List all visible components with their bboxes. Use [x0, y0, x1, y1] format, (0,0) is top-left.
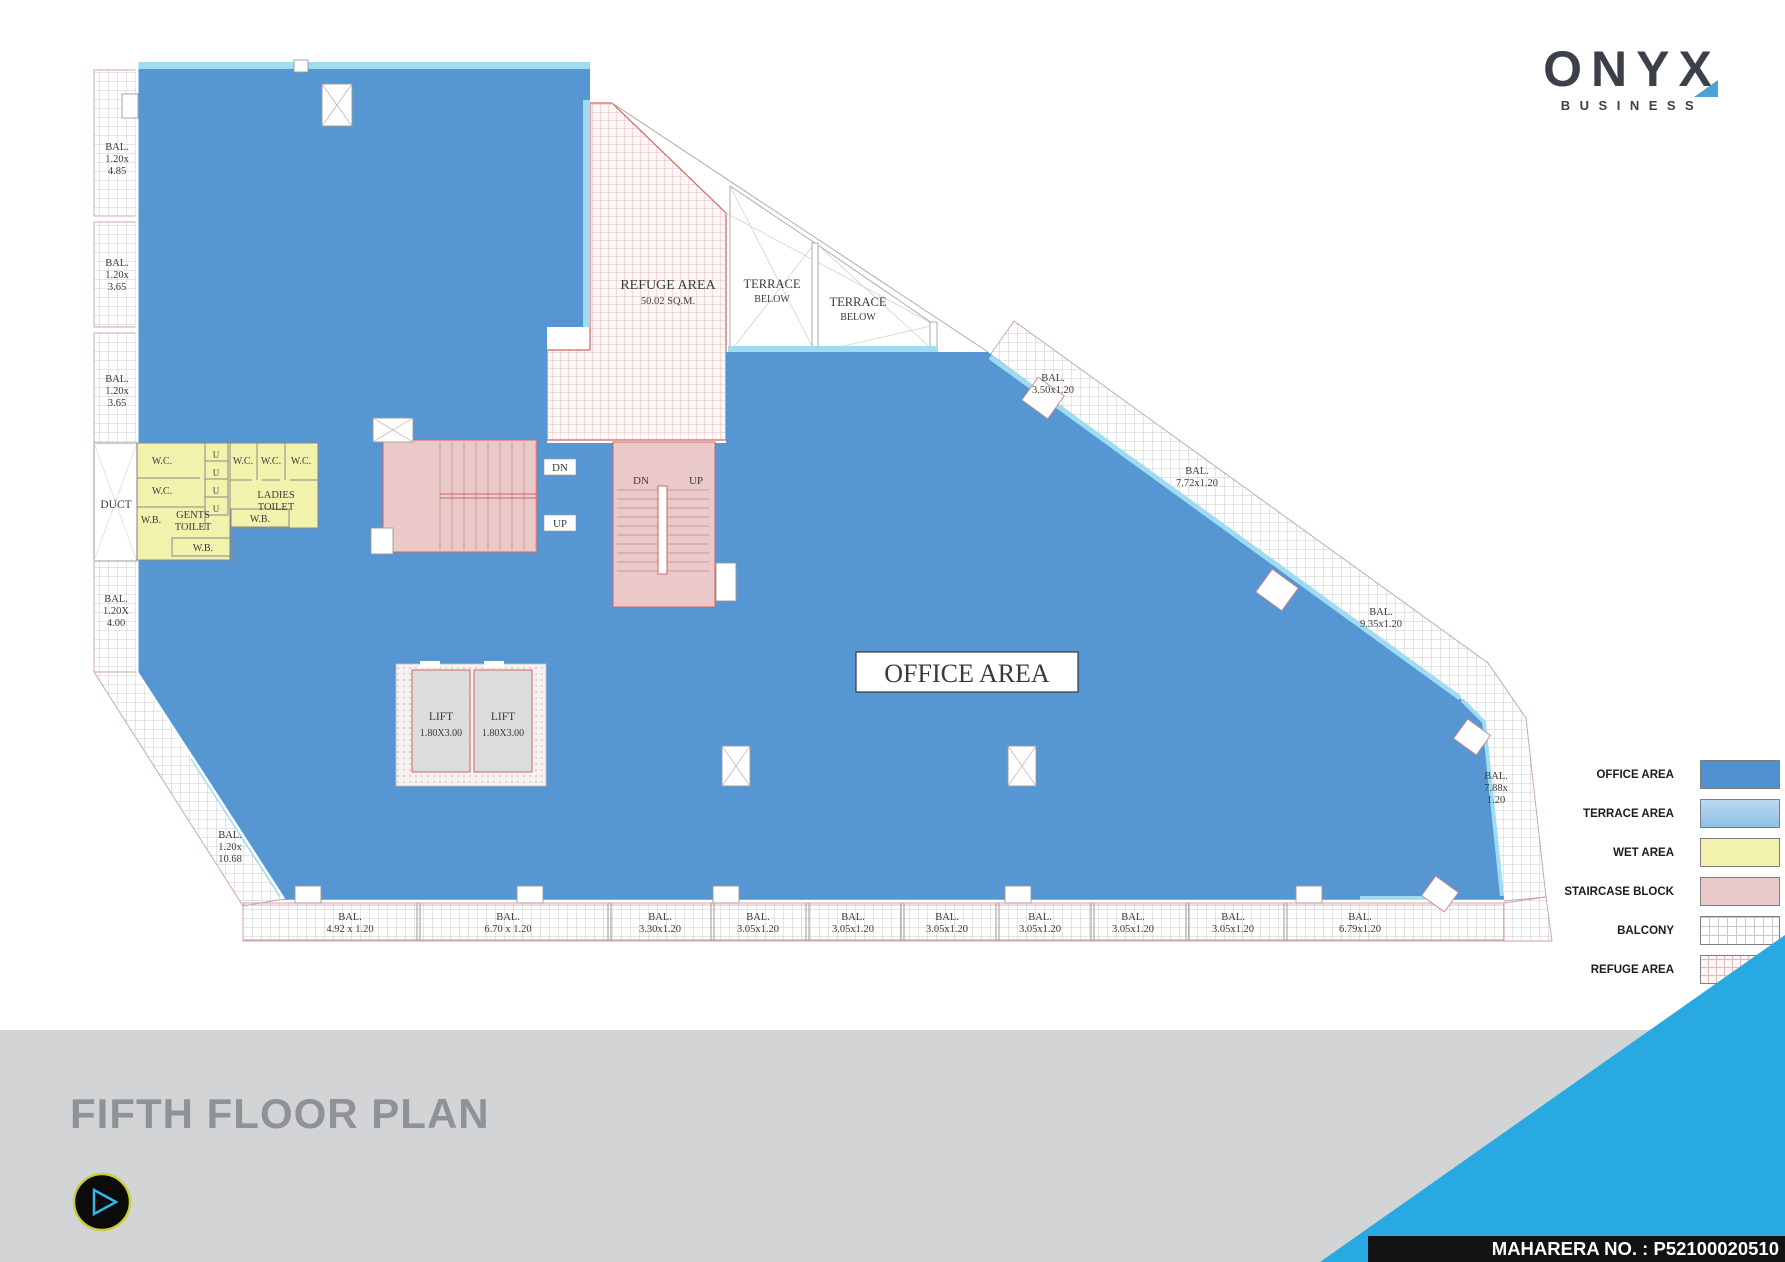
- plan-label: BELOW: [754, 294, 790, 305]
- legend-swatch-balcony: [1700, 916, 1780, 945]
- plan-label: 1.20x: [105, 154, 129, 165]
- legend-swatch-wet: [1700, 838, 1780, 867]
- plan-label: U: [213, 450, 220, 460]
- plan-label: 4.85: [108, 166, 126, 177]
- plan-label: 3.05x1.20: [1112, 924, 1154, 935]
- legend-label-wet: WET AREA: [1613, 847, 1674, 859]
- lift-block: [396, 661, 546, 786]
- staircase-2: [613, 442, 715, 607]
- plan-label: DN: [552, 462, 568, 474]
- plan-label: UP: [553, 518, 567, 530]
- legend-label-balcony: BALCONY: [1617, 925, 1674, 937]
- legend-swatch-office: [1700, 760, 1780, 789]
- page-title: FIFTH FLOOR PLAN: [70, 1090, 490, 1138]
- legend-row-terrace: TERRACE AREA: [1500, 799, 1780, 828]
- plan-label: U: [213, 486, 220, 496]
- plan-label: 50.02 SQ.M.: [641, 296, 695, 307]
- plan-label: 10.68: [218, 854, 242, 865]
- plan-label: 3.65: [108, 282, 126, 293]
- plan-label: W.B.: [141, 515, 161, 526]
- brand-subtitle: BUSINESS: [1512, 98, 1752, 113]
- maharera-bar: MAHARERA NO. : P52100020510: [1368, 1236, 1785, 1262]
- staircase-1: [383, 440, 537, 552]
- plan-label: 3.05x1.20: [1212, 924, 1254, 935]
- plan-label: LIFT: [491, 711, 515, 723]
- plan-label: W.B.: [193, 543, 213, 554]
- plan-label: 1.20x: [105, 270, 129, 281]
- legend-row-wet: WET AREA: [1500, 838, 1780, 867]
- plan-label: 3.05x1.20: [1019, 924, 1061, 935]
- plan-label: BAL.: [1369, 607, 1393, 618]
- plan-label: 3.05x1.20: [737, 924, 779, 935]
- plan-label: BAL.: [496, 912, 520, 923]
- legend-row-balcony: BALCONY: [1500, 916, 1780, 945]
- plan-label: 3.05x1.20: [832, 924, 874, 935]
- plan-label: 9.35x1.20: [1360, 619, 1402, 630]
- page: BAL.1.20x4.85BAL.1.20x3.65BAL.1.20x3.65D…: [0, 0, 1785, 1262]
- legend-label-office: OFFICE AREA: [1596, 769, 1674, 781]
- plan-label: LADIES: [257, 490, 294, 501]
- legend-swatch-terrace: [1700, 799, 1780, 828]
- legend-swatch-staircase: [1700, 877, 1780, 906]
- logo-accent-triangle-icon: [1694, 80, 1718, 97]
- plan-label: W.C.: [291, 456, 311, 467]
- plan-label: TERRACE: [830, 295, 887, 309]
- plan-label: GENTS: [176, 510, 210, 521]
- plan-label: W.C.: [261, 456, 281, 467]
- plan-label: BAL.: [1121, 912, 1145, 923]
- plan-label: 1.20X: [103, 606, 129, 617]
- plan-label: 6.70 x 1.20: [484, 924, 531, 935]
- plan-label: 3.05x1.20: [926, 924, 968, 935]
- plan-label: BAL.: [746, 912, 770, 923]
- legend-row-office: OFFICE AREA: [1500, 760, 1780, 789]
- plan-label: U: [213, 468, 220, 478]
- plan-label: BAL.: [648, 912, 672, 923]
- plan-label: 4.92 x 1.20: [326, 924, 373, 935]
- legend-row-staircase: STAIRCASE BLOCK: [1500, 877, 1780, 906]
- plan-label: BAL.: [1348, 912, 1372, 923]
- plan-label: 3.30x1.20: [639, 924, 681, 935]
- legend-label-terrace: TERRACE AREA: [1583, 808, 1674, 820]
- plan-label: 6.79x1.20: [1339, 924, 1381, 935]
- plan-label: 1.80X3.00: [482, 728, 524, 739]
- plan-label: BAL.: [104, 594, 128, 605]
- plan-label: UP: [689, 475, 703, 487]
- plan-label: BAL.: [1041, 373, 1065, 384]
- plan-label: BAL.: [1221, 912, 1245, 923]
- plan-label: U: [213, 504, 220, 514]
- balcony-bottom: [243, 903, 1504, 941]
- plan-label: BAL.: [841, 912, 865, 923]
- plan-label: 1.80X3.00: [420, 728, 462, 739]
- maharera-number: MAHARERA NO. : P52100020510: [1492, 1238, 1779, 1260]
- plan-label: BAL.: [105, 258, 129, 269]
- plan-label: TOILET: [175, 522, 212, 533]
- brand-logo: ONYX BUSINESS: [1512, 44, 1752, 113]
- plan-label: BAL.: [105, 374, 129, 385]
- plan-label: BAL.: [105, 142, 129, 153]
- plan-label: TOILET: [258, 502, 295, 513]
- legend: OFFICE AREA TERRACE AREA WET AREA STAIRC…: [1500, 760, 1780, 994]
- plan-label: BAL.: [1028, 912, 1052, 923]
- plan-label: DN: [633, 475, 649, 487]
- plan-label: DUCT: [100, 499, 131, 511]
- plan-label: 1.20x: [105, 386, 129, 397]
- plan-label: BELOW: [840, 312, 876, 323]
- plan-label: W.C.: [152, 486, 172, 497]
- legend-label-refuge: REFUGE AREA: [1591, 964, 1674, 976]
- legend-label-staircase: STAIRCASE BLOCK: [1564, 886, 1674, 898]
- plan-label: OFFICE AREA: [884, 659, 1050, 688]
- plan-label: 3.50x1.20: [1032, 385, 1074, 396]
- plan-label: 4.00: [107, 618, 125, 629]
- plan-label: W.C.: [152, 456, 172, 467]
- plan-label: BAL.: [338, 912, 362, 923]
- plan-label: BAL.: [1185, 466, 1209, 477]
- plan-label: TERRACE: [744, 277, 801, 291]
- plan-label: 3.65: [108, 398, 126, 409]
- play-button-ring: [74, 1174, 130, 1230]
- office-area-region: [137, 62, 1504, 901]
- plan-label: LIFT: [429, 711, 453, 723]
- plan-label: W.C.: [233, 456, 253, 467]
- plan-label: 7.72x1.20: [1176, 478, 1218, 489]
- plan-label: 1.20x: [218, 842, 242, 853]
- plan-label: BAL.: [935, 912, 959, 923]
- play-button[interactable]: [70, 1170, 134, 1234]
- plan-label: REFUGE AREA: [620, 278, 716, 293]
- plan-label: BAL.: [218, 830, 242, 841]
- plan-label: W.B.: [250, 514, 270, 525]
